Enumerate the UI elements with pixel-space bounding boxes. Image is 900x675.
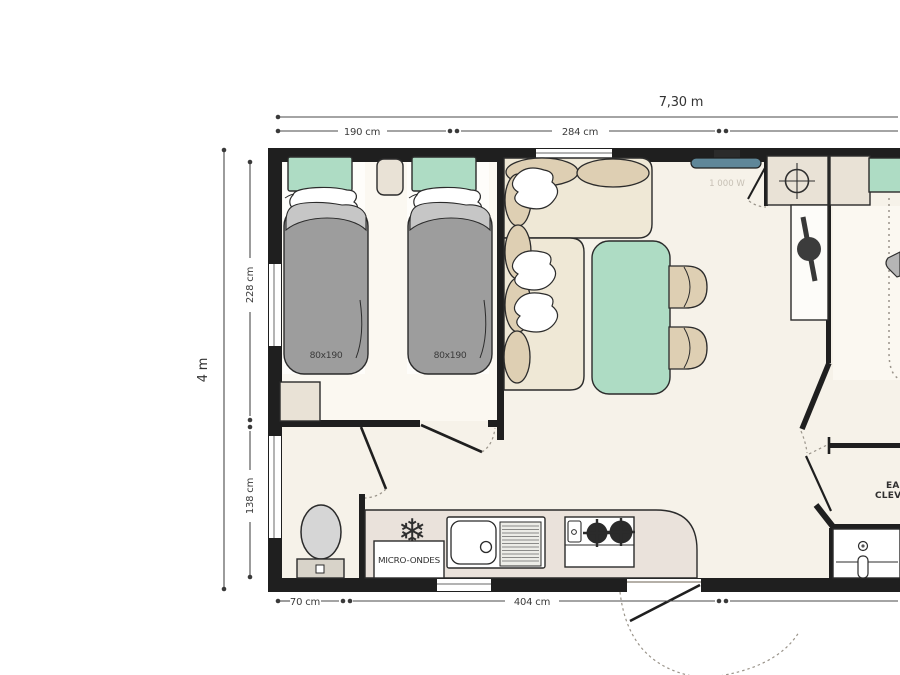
sofa-pillow-1 xyxy=(512,168,557,209)
dim-top-2: 284 cm xyxy=(562,127,598,138)
bed-2: 80x190 xyxy=(407,157,492,374)
sink-unit xyxy=(447,517,545,568)
tv-power-label: 1 000 W xyxy=(709,179,745,189)
stool-2 xyxy=(669,327,707,369)
dim-total-width: 7,30 m xyxy=(659,95,704,110)
bedroom-cabinet xyxy=(280,382,320,421)
wc-room xyxy=(297,505,344,578)
dim-left-2: 138 cm xyxy=(245,478,256,514)
bed-1-headboard xyxy=(288,157,352,191)
bed-2-headboard xyxy=(412,157,476,191)
bed-1-size-label: 80x190 xyxy=(310,350,343,361)
sofa-cushion-top-2 xyxy=(577,159,649,187)
microwave-label: MICRO-ONDES xyxy=(378,555,440,565)
dim-bottom-2: 404 cm xyxy=(514,597,550,608)
wardrobe-knob xyxy=(797,237,821,261)
wall-bedroom-right xyxy=(497,162,504,440)
kitchen: ❄ MICRO-ONDES xyxy=(365,510,697,578)
wall-bedroom-door-jamb xyxy=(488,420,502,427)
master-headboard xyxy=(869,158,900,192)
wall-bottom xyxy=(268,578,900,592)
sofa-pillow-3 xyxy=(514,293,557,332)
bed-2-mattress xyxy=(408,206,492,374)
dimension-top-total: 7,30 m xyxy=(276,95,898,119)
bed-1-mattress xyxy=(284,206,368,374)
floor-plan-canvas: 80x190 80x190 1 xyxy=(0,0,900,675)
sofa-cushion-left-4 xyxy=(504,331,530,383)
nightstand xyxy=(377,159,403,195)
drainboard xyxy=(500,522,541,566)
bed-1: 80x190 xyxy=(283,157,368,374)
bed-2-size-label: 80x190 xyxy=(434,350,467,361)
brand-label-line1: EASY xyxy=(886,481,900,491)
wall-wc-divider xyxy=(359,494,365,578)
dining-table xyxy=(592,241,670,394)
floor-plan: 80x190 80x190 1 xyxy=(0,0,900,675)
stool-1 xyxy=(669,266,707,308)
dim-total-depth: 4 m xyxy=(196,358,211,382)
window-left-2 xyxy=(269,436,281,538)
shower-handle xyxy=(858,556,868,578)
window-left-1 xyxy=(269,264,281,346)
dimension-left-segments: 228 cm 138 cm xyxy=(245,160,256,580)
sofa-pillow-2 xyxy=(512,251,555,290)
tv-screen xyxy=(691,158,761,168)
shower-drain-dot xyxy=(861,544,864,547)
master-cabinet xyxy=(830,156,870,205)
brand-label-line2: CLEVER xyxy=(875,491,900,501)
stove xyxy=(565,517,635,567)
toilet-bowl xyxy=(301,505,341,559)
master-bedroom-floor xyxy=(833,206,900,380)
dimension-top-segments: 190 cm 284 cm xyxy=(276,127,898,138)
dimension-bottom-segments: 70 cm 404 cm xyxy=(276,597,898,608)
wall-master-bath xyxy=(829,443,900,448)
toilet-button xyxy=(316,565,324,573)
sink-faucet xyxy=(481,542,492,553)
dim-left-1: 228 cm xyxy=(245,267,256,303)
dim-top-1: 190 cm xyxy=(344,127,380,138)
dimension-left-total: 4 m xyxy=(196,148,226,592)
window-bottom xyxy=(437,579,491,591)
entrance-door-arc xyxy=(620,592,799,675)
dim-bottom-1: 70 cm xyxy=(290,597,320,608)
